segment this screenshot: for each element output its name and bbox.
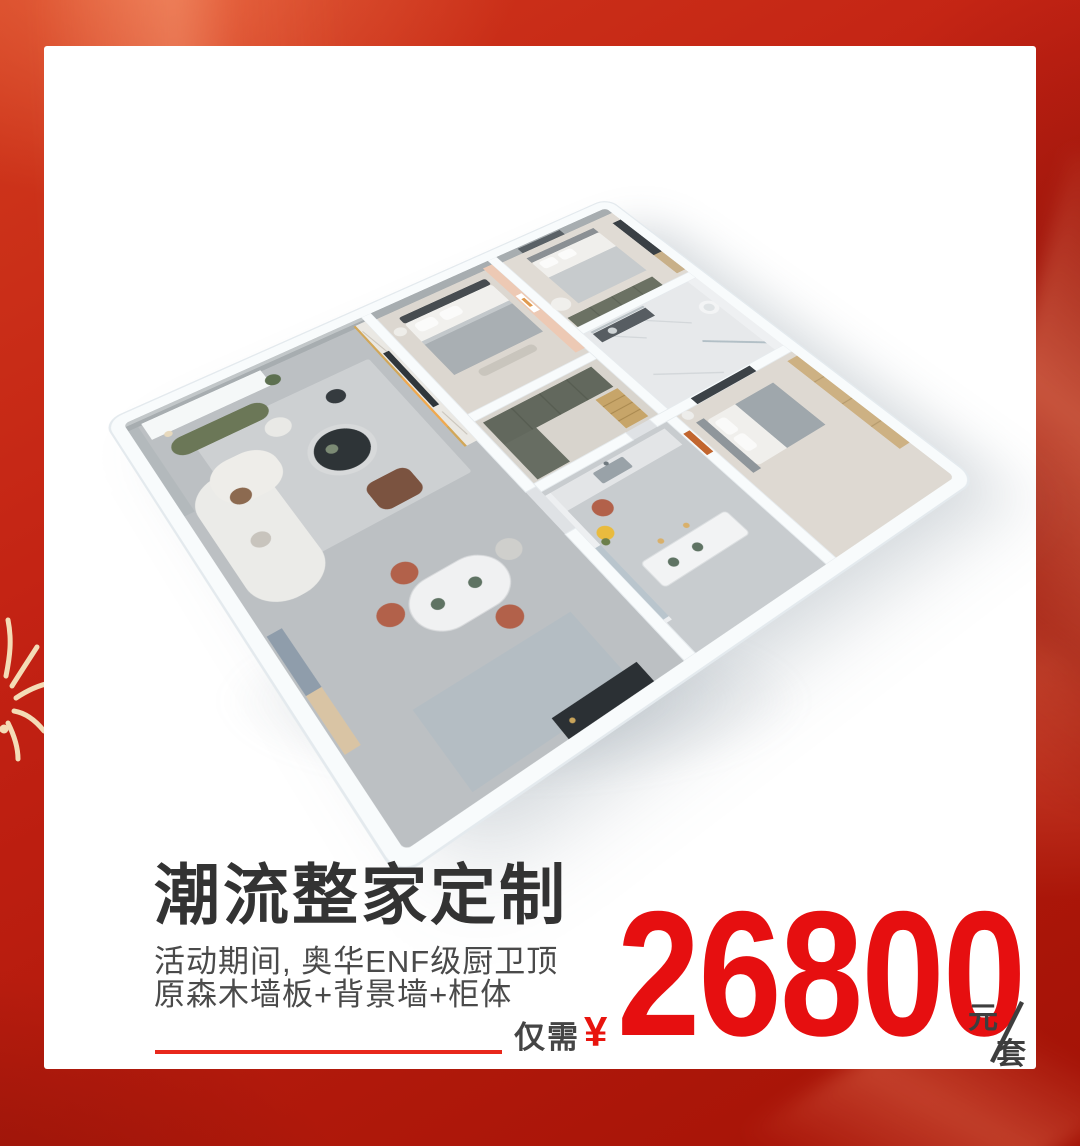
promo-card: 潮流整家定制 活动期间, 奥华ENF级厨卫顶 原森木墙板+背景墙+柜体 仅需 ¥…	[44, 46, 1036, 1069]
promo-description-line1: 活动期间, 奥华ENF级厨卫顶	[154, 945, 558, 978]
currency-symbol: ¥	[584, 1010, 607, 1054]
floorplan-scene	[230, 190, 830, 710]
price-prefix: 仅需	[514, 1022, 580, 1054]
promo-description-line2: 原森木墙板+背景墙+柜体	[154, 978, 512, 1011]
unit-denominator: 套	[996, 1038, 1026, 1068]
price-unit: 元 套	[958, 996, 1042, 1068]
poster-title: 潮流整家定制	[154, 860, 568, 930]
poster: 潮流整家定制 活动期间, 奥华ENF级厨卫顶 原森木墙板+背景墙+柜体 仅需 ¥…	[0, 0, 1080, 1146]
red-underline	[155, 1050, 502, 1054]
unit-numerator: 元	[968, 1002, 998, 1035]
